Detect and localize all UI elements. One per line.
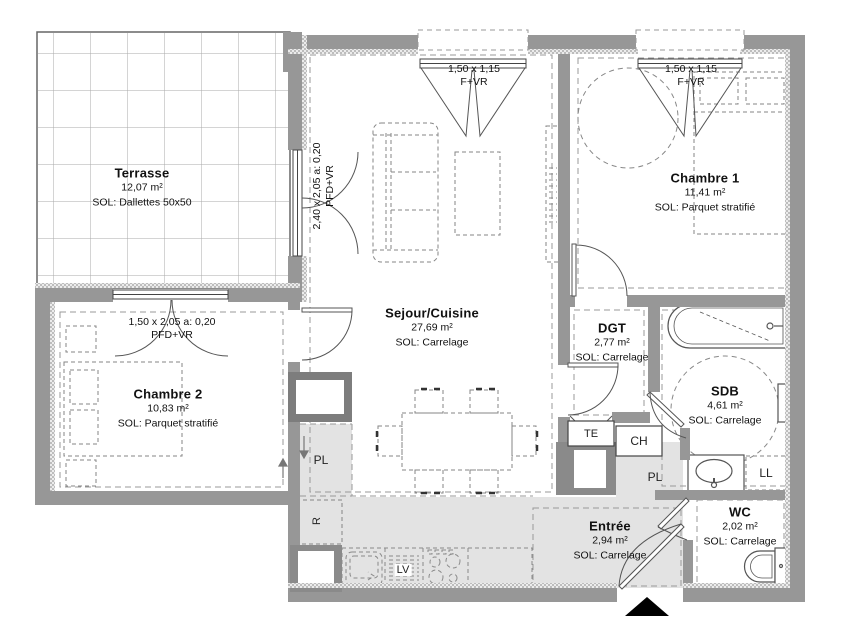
room-name: Chambre 1 (670, 171, 739, 186)
turning-circle-chambre1 (578, 68, 678, 168)
room-label-sdb: SDB 4,61 m² SOL: Carrelage (689, 384, 762, 429)
window-dims: 2,40 x 2,05 a: 0,20 (311, 143, 324, 230)
door-dgt (568, 363, 618, 415)
pl-sejour-label: PL (314, 453, 329, 467)
room-label-dgt: DGT 2,77 m² SOL: Carrelage (576, 321, 649, 366)
coffee-table (455, 152, 500, 235)
room-name: DGT (598, 321, 626, 336)
room-name: SDB (711, 384, 739, 399)
room-floor: SOL: Carrelage (574, 549, 647, 564)
floor-plan: Terrasse 12,07 m² SOL: Dallettes 50x50 S… (0, 0, 860, 618)
dishwasher-label: LV (395, 564, 412, 576)
chair-ticks (377, 389, 537, 493)
room-area: 27,69 m² (411, 321, 452, 336)
window-label-chambre1-top: 1,50 x 1,15 F+VR (665, 63, 717, 89)
room-label-sejour: Sejour/Cuisine 27,69 m² SOL: Carrelage (385, 306, 479, 351)
pl-entree-label: PL (648, 470, 663, 484)
room-name: Terrasse (115, 166, 170, 181)
duct-sejour (288, 372, 352, 422)
fridge-label: R (311, 517, 323, 525)
window-label-chambre2: 1,50 x 2,05 a: 0,20 PFD+VR (129, 316, 216, 342)
window-type: PFD+VR (324, 165, 337, 207)
window-dims: 1,50 x 2,05 a: 0,20 (129, 316, 216, 329)
window-dims: 1,50 x 1,15 (448, 63, 500, 76)
bathtub (668, 304, 786, 348)
room-name: WC (729, 505, 751, 520)
room-area: 11,41 m² (685, 186, 726, 201)
room-area: 2,94 m² (592, 534, 628, 549)
sofa (373, 123, 438, 262)
room-label-chambre1: Chambre 1 11,41 m² SOL: Parquet stratifi… (655, 171, 755, 216)
window-type: PFD+VR (151, 329, 193, 342)
terrace-tiles (37, 32, 290, 288)
room-floor: SOL: Dallettes 50x50 (92, 196, 191, 211)
room-floor: SOL: Parquet stratifié (118, 417, 218, 432)
bathtub-tap (767, 323, 773, 329)
washbasin (688, 455, 744, 491)
window-type: F+VR (460, 76, 487, 89)
duct-te (556, 442, 616, 495)
room-name: Entrée (589, 519, 631, 534)
room-label-entree: Entrée 2,94 m² SOL: Carrelage (574, 519, 647, 564)
room-area: 10,83 m² (147, 402, 188, 417)
room-area: 4,61 m² (707, 399, 743, 414)
entrance-arrow (625, 597, 669, 616)
room-floor: SOL: Parquet stratifié (655, 201, 755, 216)
window-dims: 1,50 x 1,15 (665, 63, 717, 76)
window-label-sejour-top: 1,50 x 1,15 F+VR (448, 63, 500, 89)
room-label-wc: WC 2,02 m² SOL: Carrelage (704, 505, 777, 550)
room-floor: SOL: Carrelage (396, 336, 469, 351)
room-area: 12,07 m² (121, 181, 162, 196)
room-floor: SOL: Carrelage (704, 535, 777, 550)
room-floor: SOL: Carrelage (689, 414, 762, 429)
room-name: Sejour/Cuisine (385, 306, 479, 321)
te-label: TE (584, 428, 598, 440)
room-floor: SOL: Carrelage (576, 351, 649, 366)
window-type: F+VR (677, 76, 704, 89)
ch-label: CH (630, 434, 647, 448)
room-area: 2,77 m² (594, 336, 630, 351)
washing-machine-label: LL (759, 466, 772, 480)
room-name: Chambre 2 (133, 387, 202, 402)
room-label-terrasse: Terrasse 12,07 m² SOL: Dallettes 50x50 (92, 166, 191, 211)
room-area: 2,02 m² (722, 520, 758, 535)
dining-table (378, 390, 536, 493)
toilet (745, 548, 788, 585)
door-label-terrace: 2,40 x 2,05 a: 0,20 PFD+VR (311, 143, 337, 230)
room-label-chambre2: Chambre 2 10,83 m² SOL: Parquet stratifi… (118, 387, 218, 432)
